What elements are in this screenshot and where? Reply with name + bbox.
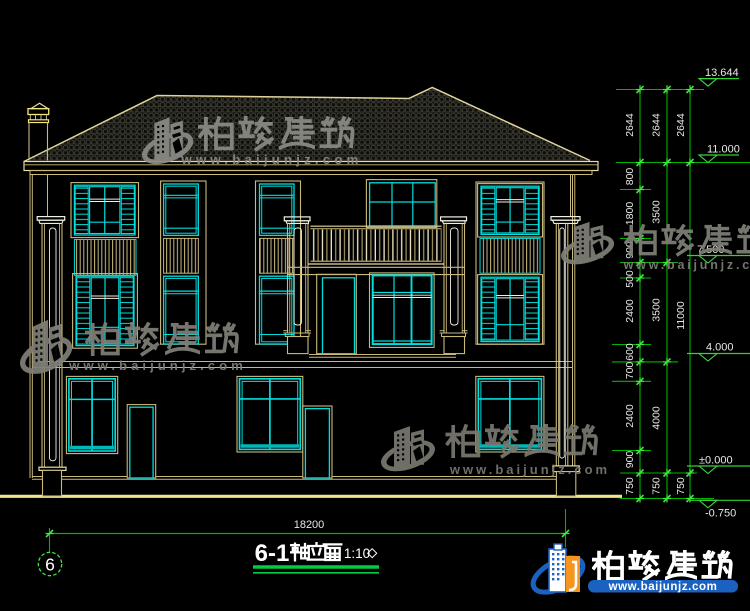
svg-text:www.baijunjz.com: www.baijunjz.com [623,258,750,272]
svg-text:6-1: 6-1 [255,540,290,567]
svg-text:18200: 18200 [294,519,325,531]
svg-text:750: 750 [624,477,636,495]
svg-text:700: 700 [624,362,636,380]
svg-text:11.000: 11.000 [707,144,740,156]
svg-text:800: 800 [624,168,636,186]
svg-text:2400: 2400 [624,299,636,323]
svg-text:4000: 4000 [651,406,663,430]
svg-text:6: 6 [45,555,55,575]
svg-text:www.baijunjz.com: www.baijunjz.com [449,462,610,477]
svg-text:2644: 2644 [624,113,636,137]
svg-text:3500: 3500 [651,298,663,322]
svg-text:500: 500 [624,270,636,288]
svg-text:900: 900 [624,451,636,469]
svg-text:4.000: 4.000 [706,342,734,354]
svg-text:www.baijunjz.com: www.baijunjz.com [608,581,718,593]
svg-text:2400: 2400 [624,404,636,428]
svg-text:www.baijunjz.com: www.baijunjz.com [68,358,247,373]
svg-text:www.baijunjz.com: www.baijunjz.com [180,152,362,167]
svg-text:750: 750 [651,477,663,495]
svg-text:1800: 1800 [624,202,636,226]
svg-text:750: 750 [675,477,687,495]
svg-text:13.644: 13.644 [705,67,739,79]
svg-text:600: 600 [624,343,636,361]
svg-text:1:10: 1:10 [344,546,370,561]
svg-text:-0.750: -0.750 [705,508,736,520]
svg-text:±0.000: ±0.000 [699,455,733,467]
svg-text:11000: 11000 [675,301,687,330]
svg-text:2644: 2644 [675,113,687,137]
svg-text:2644: 2644 [651,113,663,137]
svg-text:3500: 3500 [651,200,663,224]
